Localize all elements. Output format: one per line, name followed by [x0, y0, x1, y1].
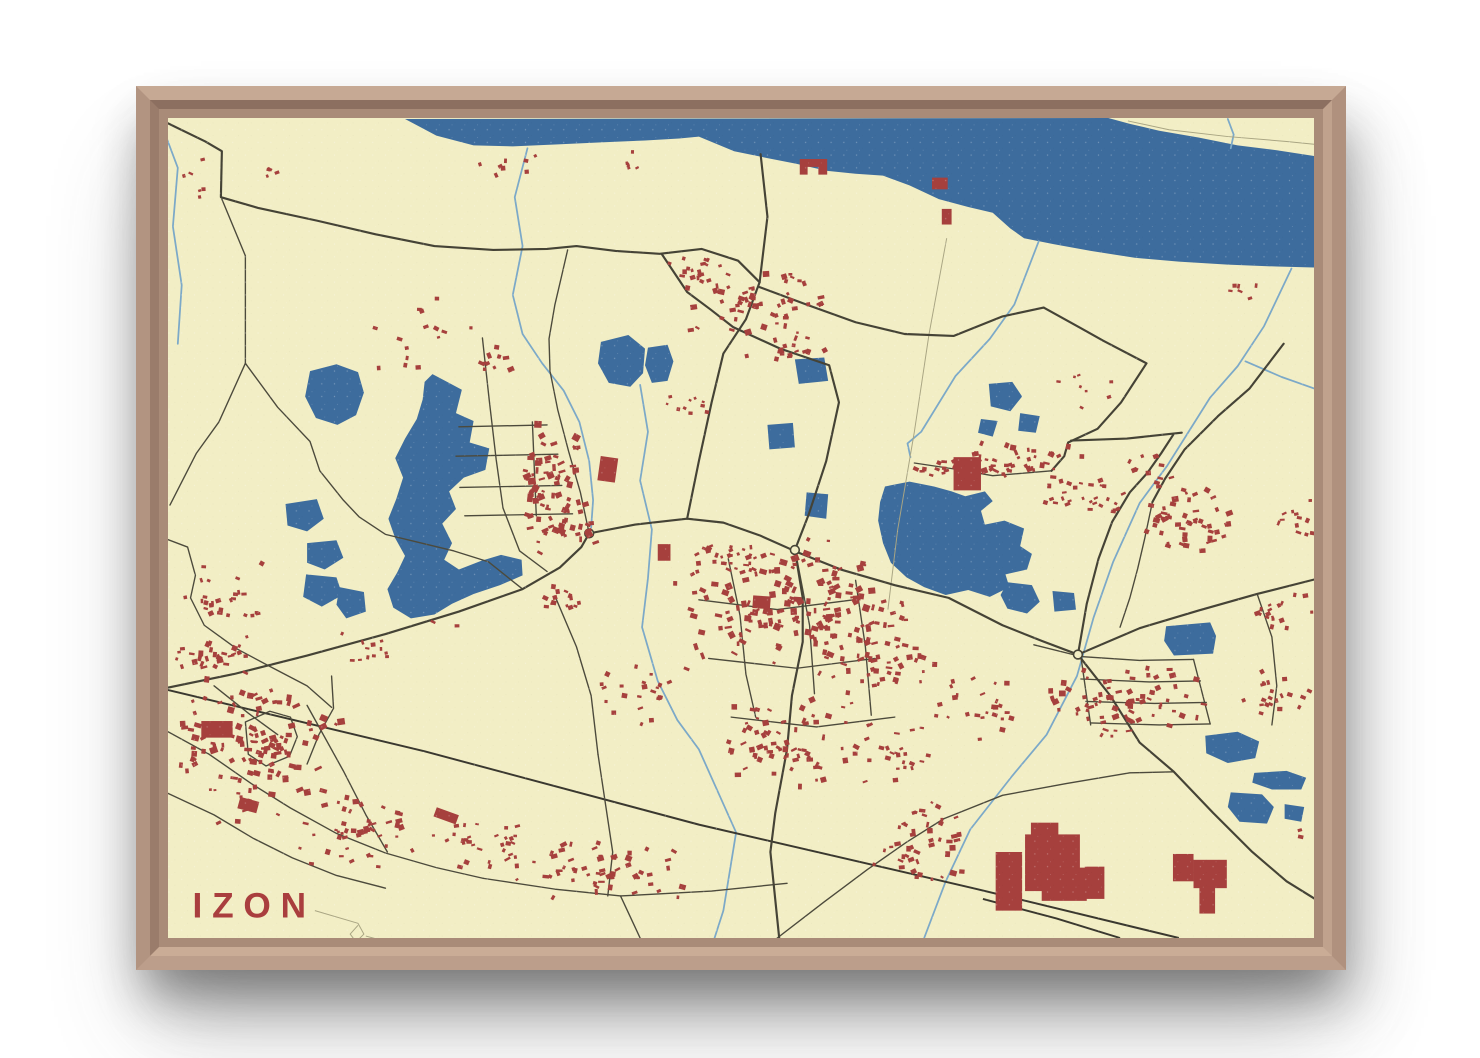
- screenshot-scene: IZON: [0, 0, 1480, 1058]
- map-poster: IZON: [168, 118, 1314, 938]
- paper-texture: [168, 118, 1314, 938]
- poster-frame: IZON: [136, 86, 1346, 970]
- izon-map-svg: IZON: [168, 118, 1314, 938]
- poster-frame-bevel: IZON: [150, 100, 1332, 956]
- poster-title: IZON: [192, 887, 315, 926]
